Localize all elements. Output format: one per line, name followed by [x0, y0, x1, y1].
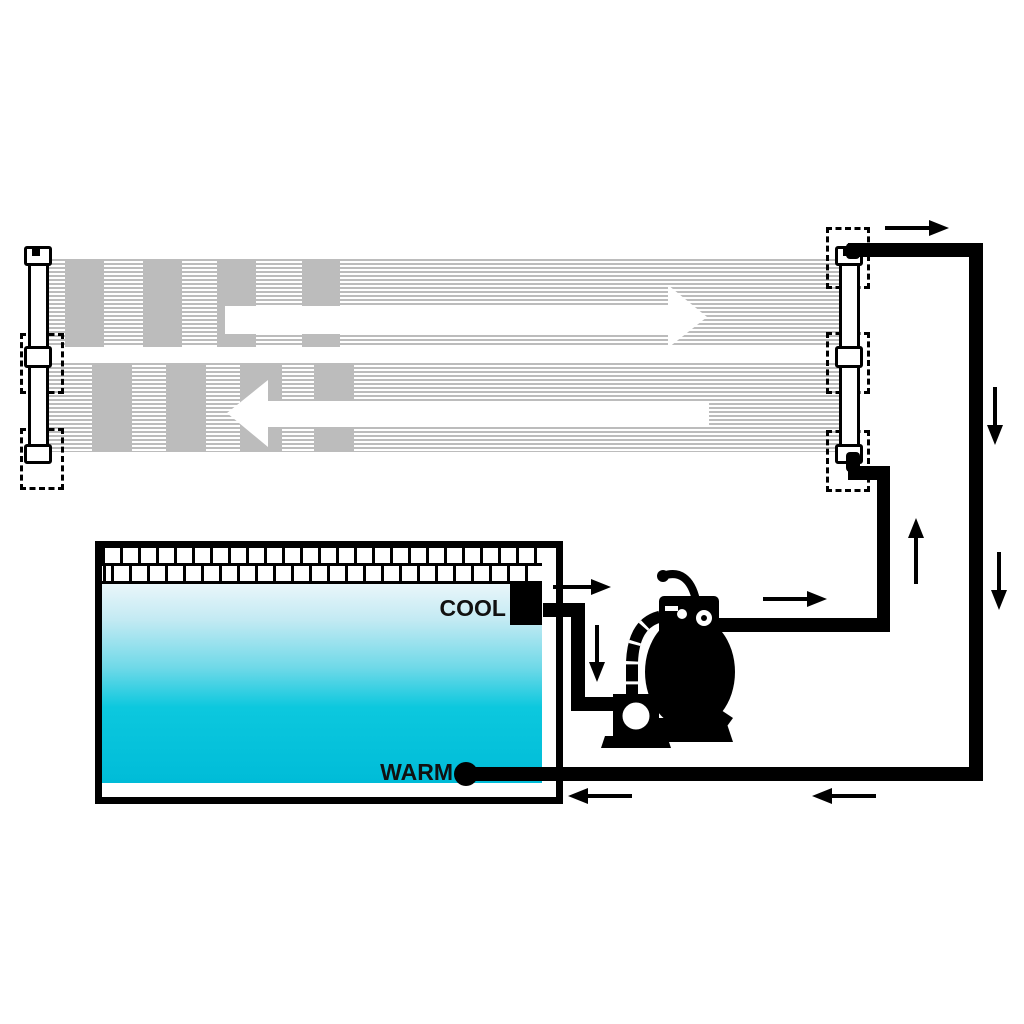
- flow-arrow-left-icon: [588, 794, 632, 798]
- pool-cool-outlet: [510, 584, 542, 625]
- flow-arrow-left-icon: [832, 794, 876, 798]
- pipe-pool-to-pump: [571, 603, 585, 711]
- manifold-plug: [32, 249, 40, 256]
- warm-return-nozzle: [454, 762, 478, 786]
- pool-tile-row: [102, 566, 542, 584]
- flow-arrow-right-icon: [225, 285, 707, 348]
- pipe-collector-outlet: [848, 243, 983, 257]
- pipe-supply-riser: [877, 466, 890, 632]
- cool-label: COOL: [396, 595, 506, 622]
- pipe-supply-elbow: [848, 466, 890, 480]
- flow-arrow-up-icon: [914, 538, 918, 584]
- flow-arrow-down-icon: [993, 387, 997, 425]
- manifold-coupling: [835, 346, 863, 368]
- pump-motor-icon: [620, 700, 652, 732]
- flow-arrow-right-icon: [885, 226, 929, 230]
- flow-arrow-down-icon: [595, 625, 599, 662]
- sand-filter-pump: [593, 566, 753, 751]
- flow-arrow-right-icon: [763, 597, 807, 601]
- flow-arrow-down-icon: [997, 552, 1001, 590]
- pipe-return-riser: [969, 243, 983, 781]
- flow-arrow-right-icon: [553, 585, 591, 589]
- flow-arrow-left-icon: [227, 380, 709, 447]
- manifold-coupling: [24, 346, 52, 368]
- panel-flow-arrows: [43, 259, 845, 452]
- solar-pool-heating-diagram: COOL WARM: [0, 0, 1024, 1024]
- warm-label: WARM: [343, 759, 453, 786]
- manifold-end-cap: [24, 444, 52, 464]
- pool-tile-row: [102, 548, 542, 566]
- pipe-warm-return: [462, 767, 983, 781]
